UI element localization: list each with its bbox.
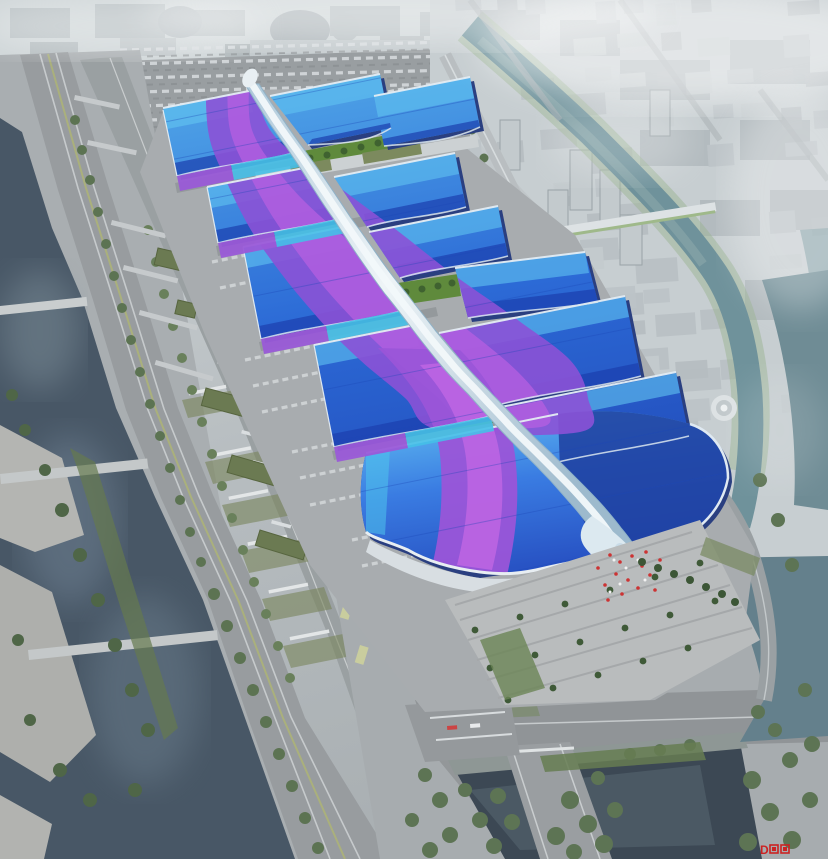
- svg-text:D: D: [760, 843, 769, 857]
